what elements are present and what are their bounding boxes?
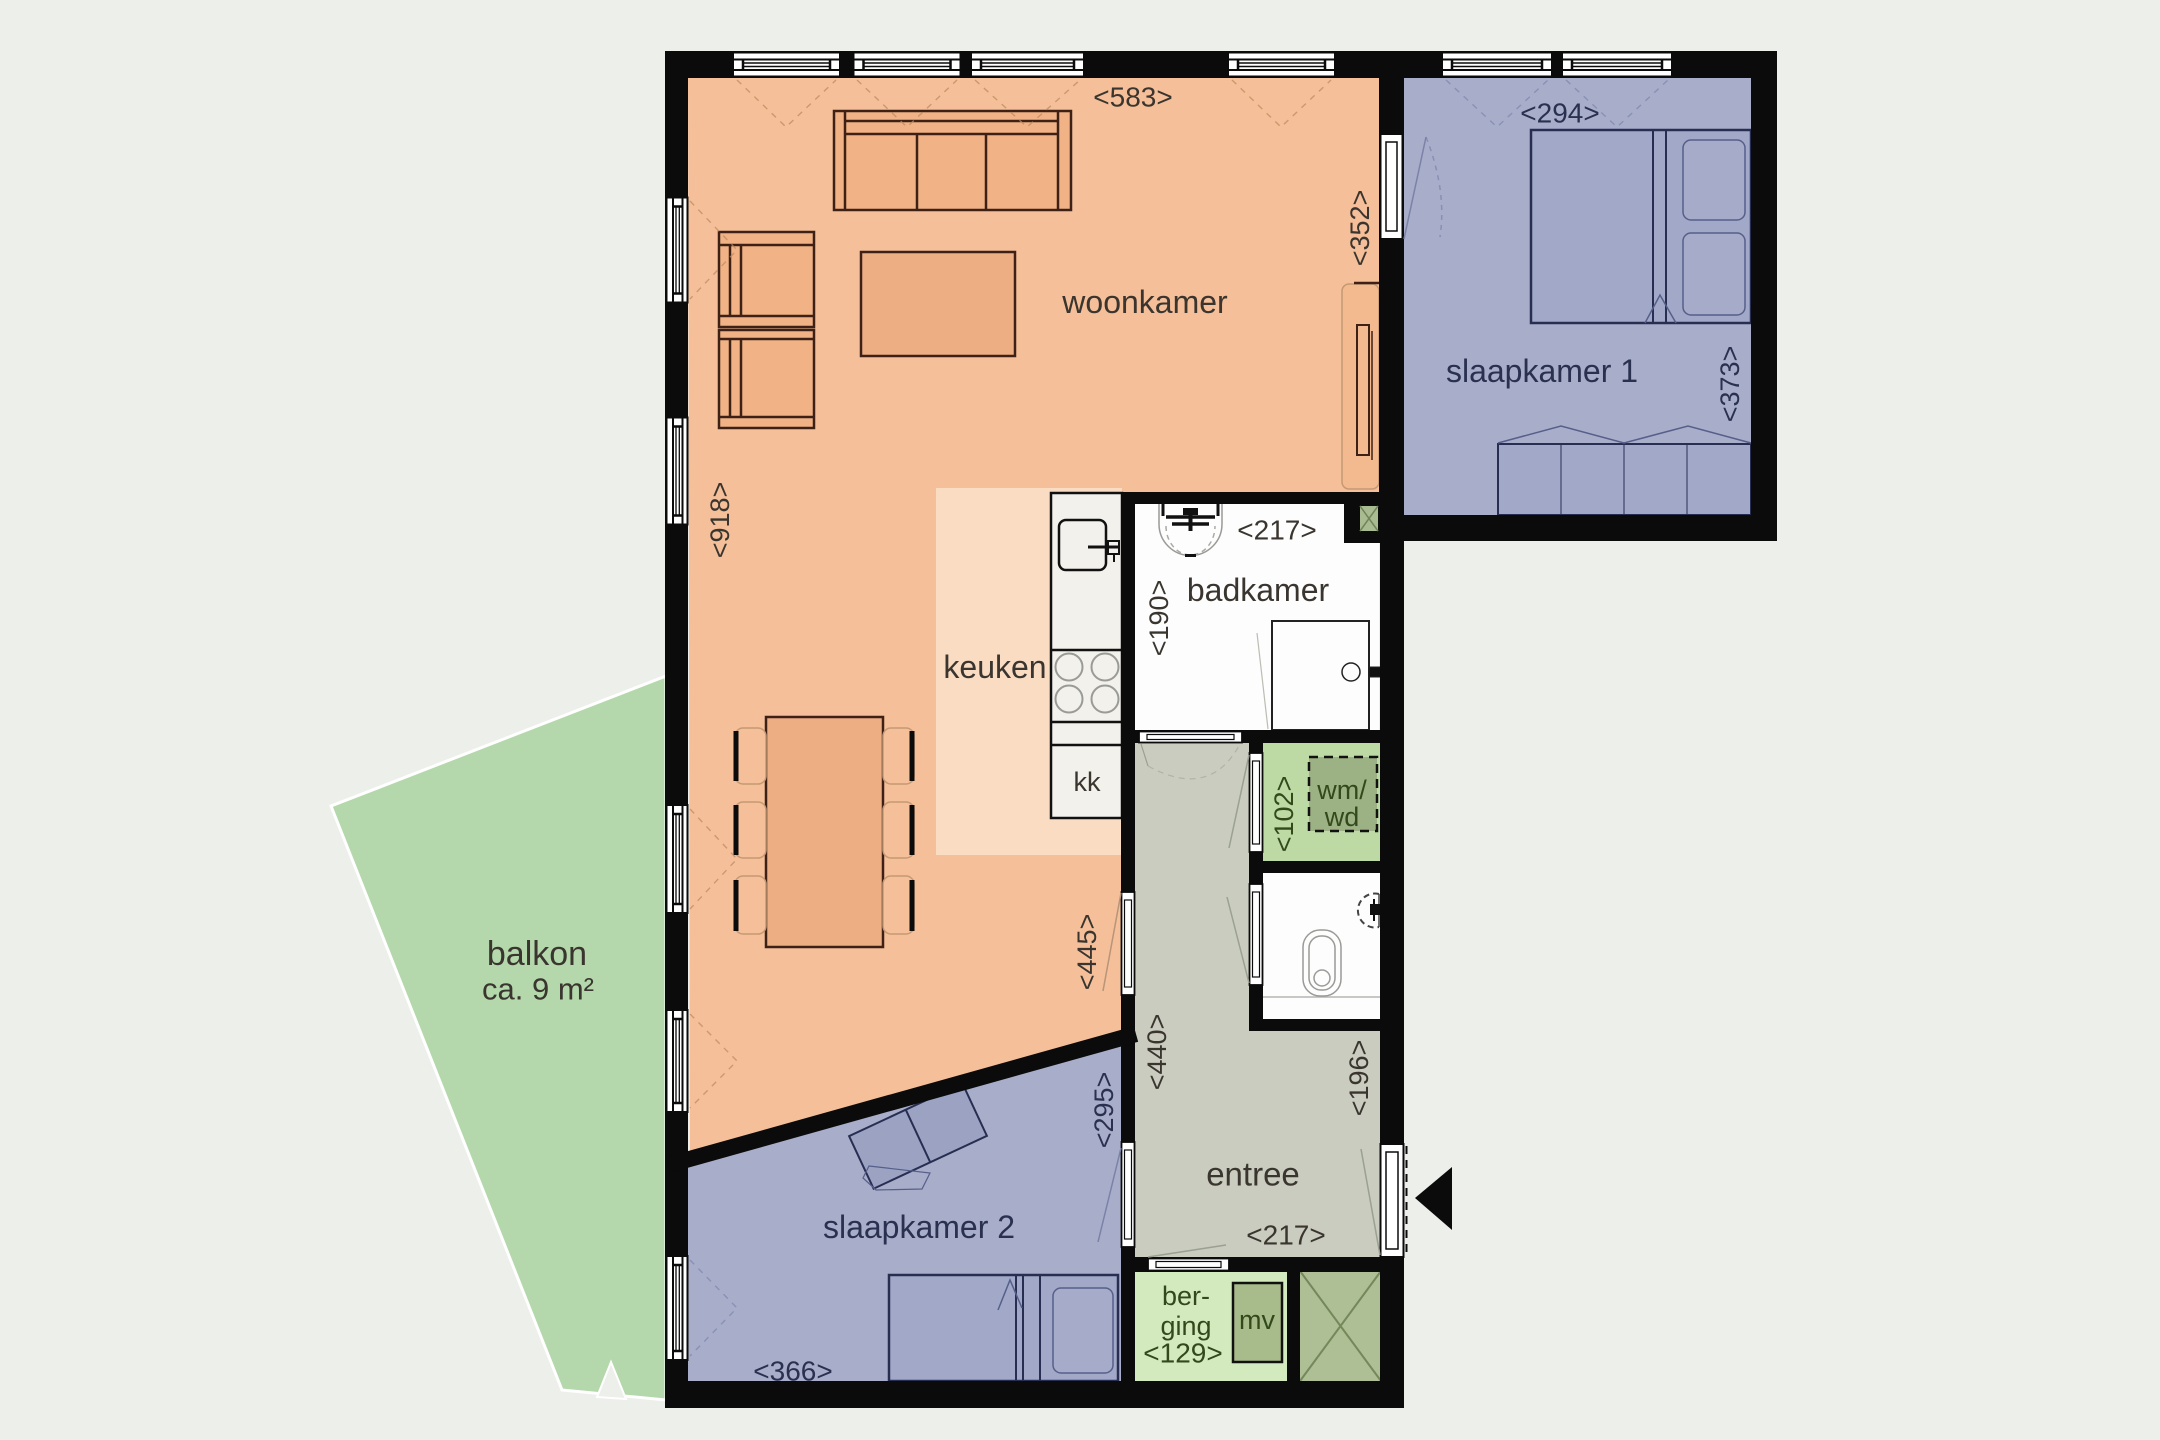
svg-text:<373>: <373> — [1715, 346, 1745, 423]
svg-text:<445>: <445> — [1072, 914, 1102, 991]
svg-text:ca. 9 m²: ca. 9 m² — [482, 972, 594, 1007]
svg-text:keuken: keuken — [943, 649, 1046, 685]
svg-text:slaapkamer 1: slaapkamer 1 — [1446, 353, 1638, 389]
svg-text:<295>: <295> — [1089, 1072, 1119, 1149]
svg-text:<366>: <366> — [753, 1356, 832, 1387]
svg-text:<294>: <294> — [1520, 98, 1599, 129]
svg-text:slaapkamer 2: slaapkamer 2 — [823, 1209, 1015, 1245]
svg-text:<217>: <217> — [1237, 515, 1316, 546]
svg-text:<352>: <352> — [1345, 190, 1375, 267]
svg-text:<918>: <918> — [705, 482, 735, 559]
svg-text:woonkamer: woonkamer — [1061, 284, 1228, 320]
svg-text:<196>: <196> — [1344, 1040, 1374, 1117]
svg-text:wm/: wm/ — [1316, 775, 1367, 805]
svg-text:<190>: <190> — [1144, 580, 1174, 657]
svg-text:wd: wd — [1324, 802, 1360, 832]
svg-text:<217>: <217> — [1246, 1220, 1325, 1251]
svg-text:balkon: balkon — [487, 935, 587, 973]
svg-text:<440>: <440> — [1142, 1014, 1172, 1091]
svg-text:kk: kk — [1074, 767, 1102, 797]
svg-text:<583>: <583> — [1093, 82, 1172, 113]
svg-text:<129>: <129> — [1143, 1338, 1222, 1369]
svg-text:badkamer: badkamer — [1187, 572, 1330, 608]
svg-text:ging: ging — [1160, 1311, 1211, 1341]
svg-text:entree: entree — [1206, 1156, 1300, 1193]
svg-text:mv: mv — [1239, 1305, 1275, 1335]
svg-text:ber-: ber- — [1162, 1281, 1210, 1311]
svg-text:<102>: <102> — [1269, 776, 1299, 853]
